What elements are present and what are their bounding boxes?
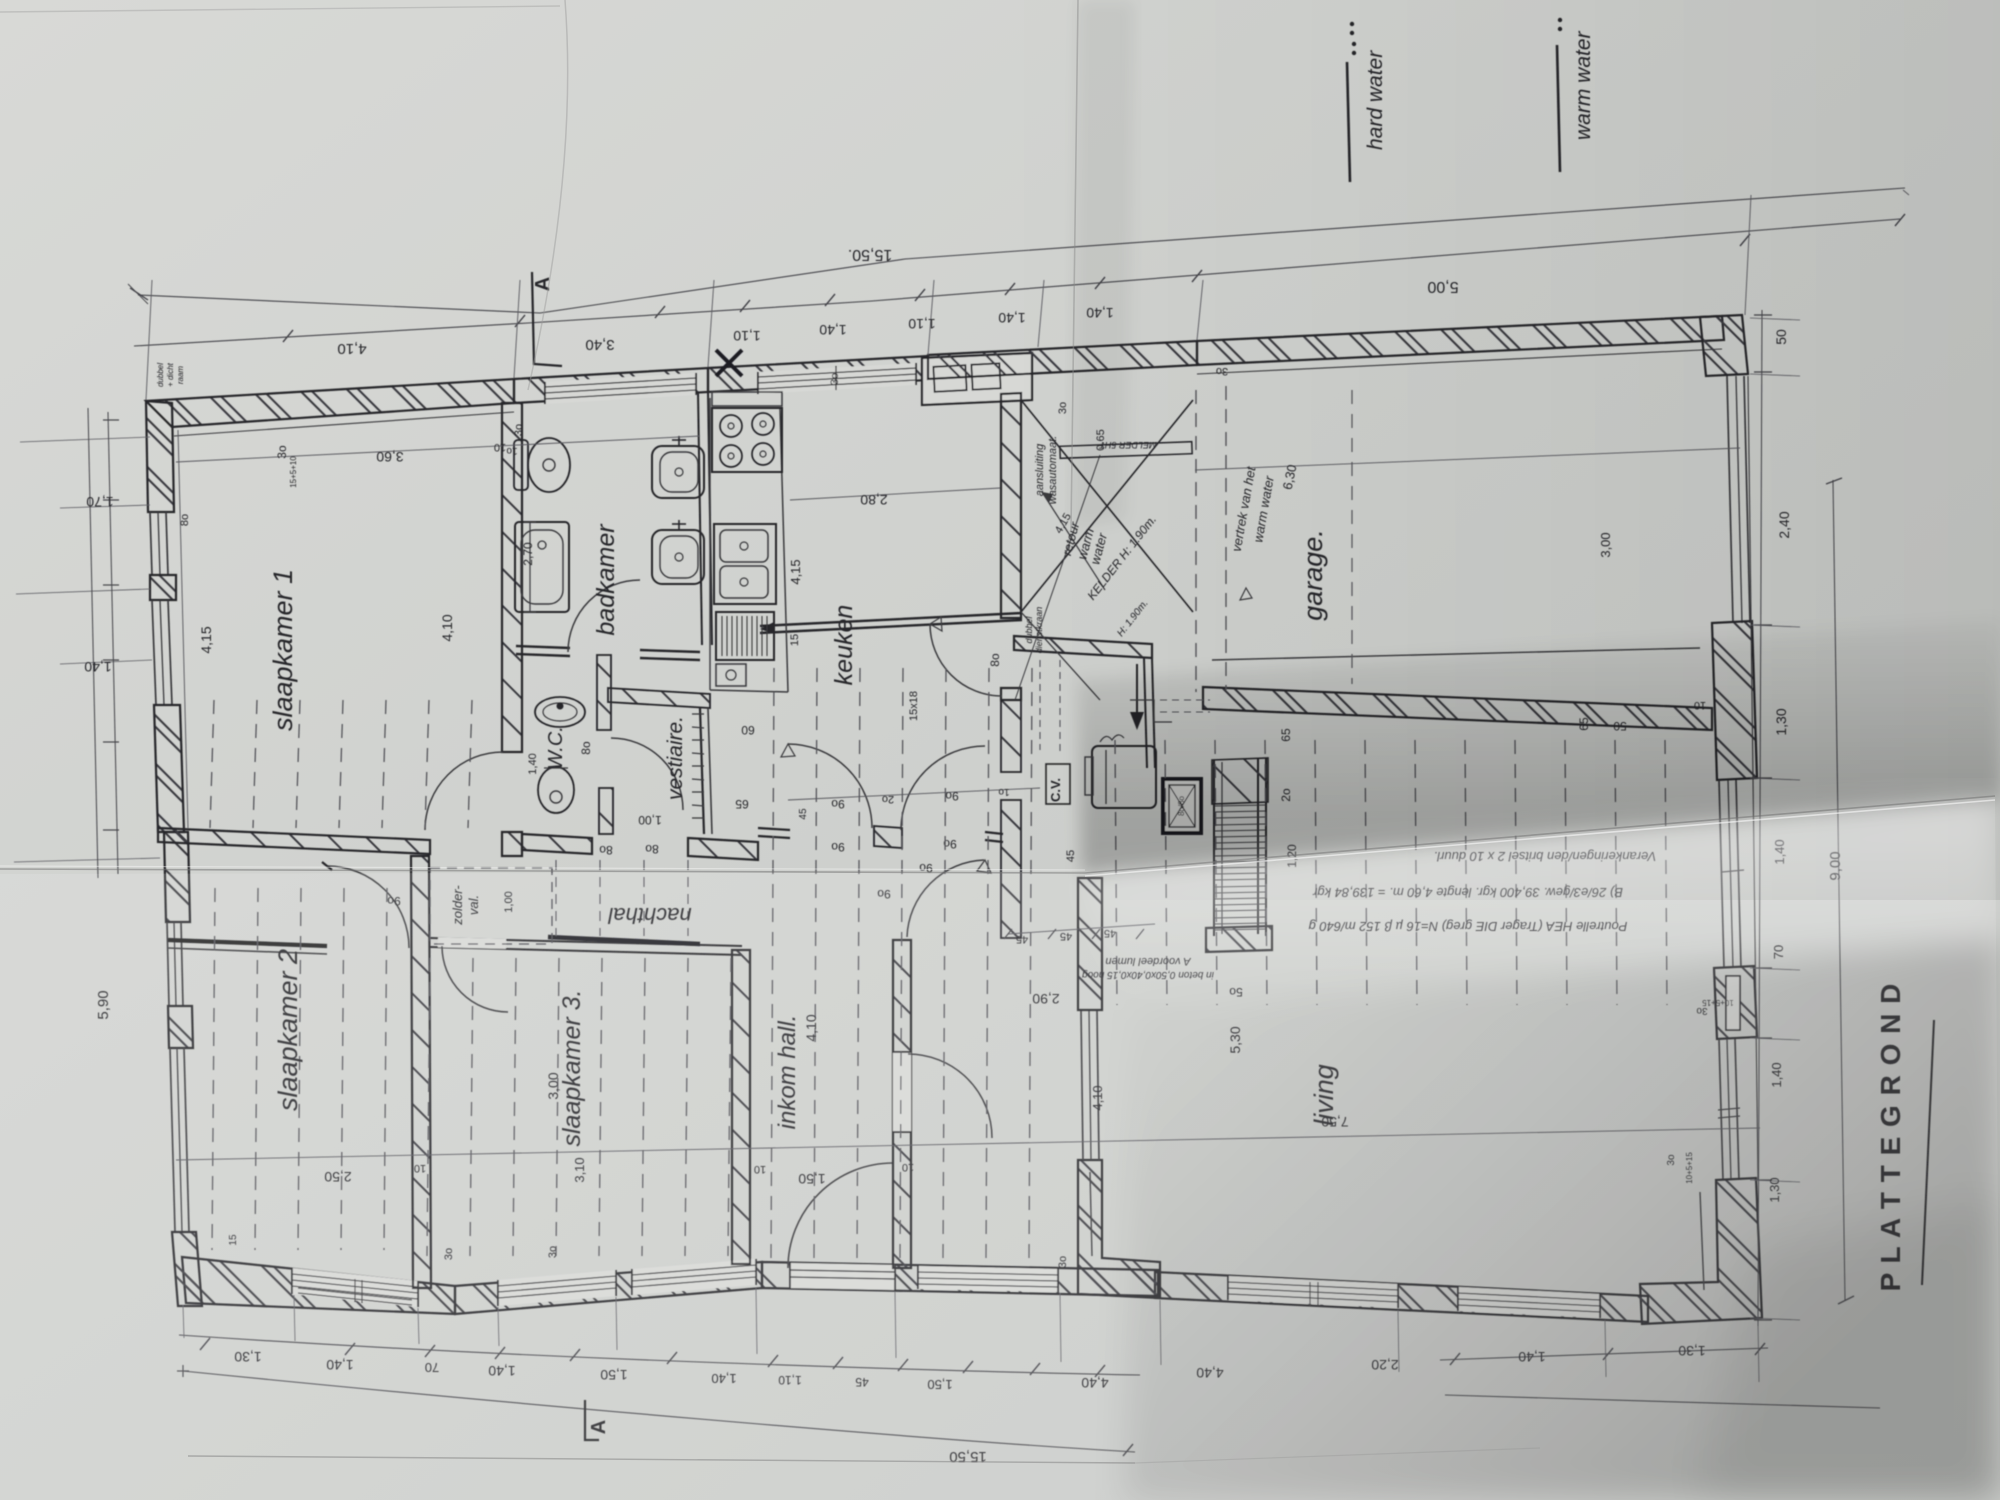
svg-text:1,40: 1,40 (527, 753, 539, 774)
svg-text:A: A (532, 277, 554, 291)
svg-text:+ dicht: + dicht (166, 362, 175, 387)
svg-text:3,40: 3,40 (585, 336, 614, 353)
svg-text:8o: 8o (579, 741, 593, 755)
svg-text:15+5+10: 15+5+10 (289, 456, 298, 488)
svg-text:2o: 2o (882, 793, 894, 805)
svg-text:1,00: 1,00 (638, 813, 662, 827)
svg-text:3o: 3o (513, 424, 525, 436)
svg-text:1,10: 1,10 (733, 328, 760, 344)
svg-text:10: 10 (494, 441, 506, 453)
svg-text:1,40: 1,40 (819, 322, 846, 338)
svg-text:dubbel: dubbel (156, 363, 165, 387)
svg-text:W.C.: W.C. (545, 726, 567, 770)
svg-text:raam: raam (176, 366, 185, 385)
svg-text:1,10: 1,10 (908, 316, 935, 332)
svg-text:2,80: 2,80 (860, 492, 887, 508)
svg-text:60: 60 (741, 723, 755, 737)
svg-text:1o: 1o (506, 445, 518, 456)
svg-text:4,10: 4,10 (337, 340, 366, 357)
svg-text:15: 15 (789, 634, 801, 646)
svg-text:3,60: 3,60 (376, 449, 403, 465)
svg-text:4,15: 4,15 (788, 559, 803, 584)
svg-text:1,40: 1,40 (84, 659, 111, 675)
svg-text:8o: 8o (179, 514, 191, 526)
svg-text:1,70: 1,70 (86, 494, 113, 510)
svg-text:15x18: 15x18 (908, 691, 920, 721)
svg-text:9o: 9o (831, 797, 845, 811)
svg-text:keuken: keuken (830, 605, 858, 686)
svg-text:vestiaire.: vestiaire. (664, 716, 687, 800)
svg-text:9o: 9o (945, 789, 959, 803)
svg-text:8o: 8o (599, 843, 613, 857)
svg-text:badkamer: badkamer (592, 523, 620, 636)
svg-text:3o: 3o (829, 373, 841, 385)
svg-text:15,50.: 15,50. (848, 246, 892, 263)
svg-text:9o: 9o (831, 840, 845, 854)
svg-text:4,10: 4,10 (439, 614, 455, 641)
svg-text:slaapkamer 1: slaapkamer 1 (268, 569, 298, 731)
svg-text:65: 65 (735, 797, 749, 811)
svg-text:8o: 8o (988, 653, 1002, 667)
svg-text:45: 45 (798, 808, 809, 820)
svg-text:2,70: 2,70 (521, 542, 535, 566)
svg-text:8o: 8o (645, 842, 659, 856)
svg-text:3o: 3o (275, 445, 289, 459)
svg-text:4,15: 4,15 (198, 626, 214, 653)
